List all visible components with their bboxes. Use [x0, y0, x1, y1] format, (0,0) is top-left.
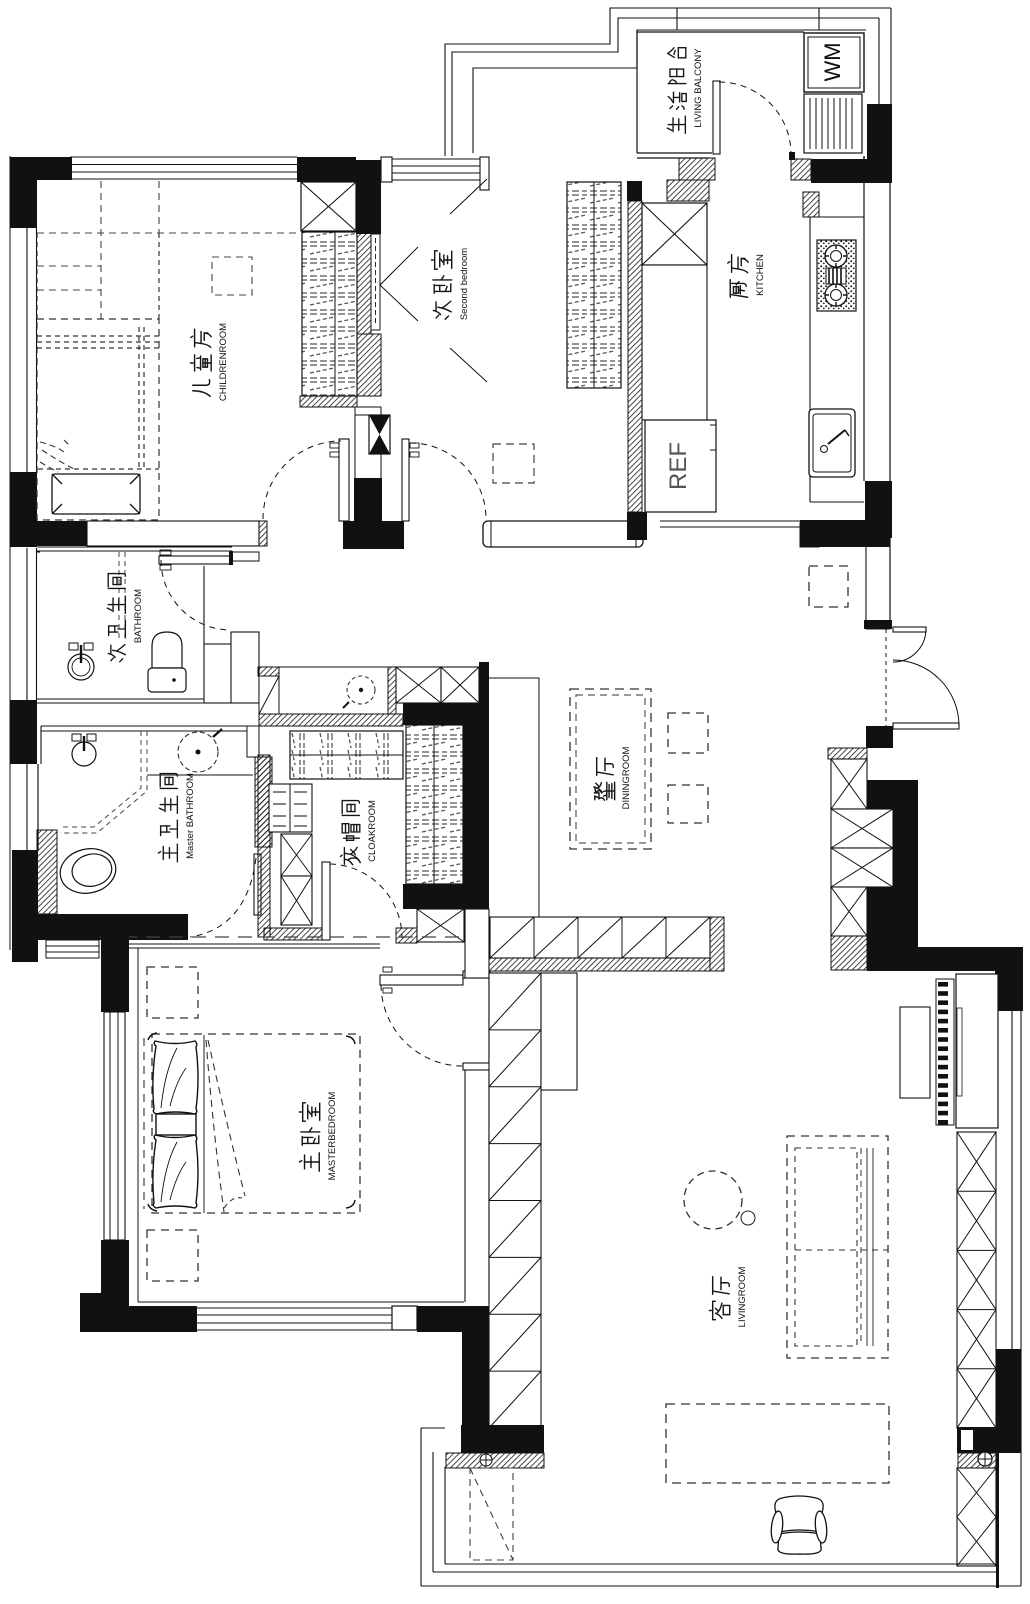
svg-text:REF: REF: [665, 442, 692, 490]
svg-text:CLOAKROOM: CLOAKROOM: [367, 800, 378, 862]
svg-text:KITCHEN: KITCHEN: [755, 254, 766, 296]
svg-text:LIVINGROOM: LIVINGROOM: [737, 1267, 748, 1328]
svg-text:Second bedroom: Second bedroom: [459, 248, 470, 320]
svg-text:CHILDRENROOM: CHILDRENROOM: [218, 323, 229, 401]
svg-text:Master BATHROOM: Master BATHROOM: [185, 773, 196, 859]
svg-text:LIVING BALCONY: LIVING BALCONY: [693, 48, 704, 128]
svg-text:MASTERBEDROOM: MASTERBEDROOM: [327, 1092, 338, 1181]
svg-text:BATHROOM: BATHROOM: [133, 589, 144, 643]
svg-text:DININGROOM: DININGROOM: [621, 747, 632, 810]
svg-text:WM: WM: [820, 42, 845, 81]
